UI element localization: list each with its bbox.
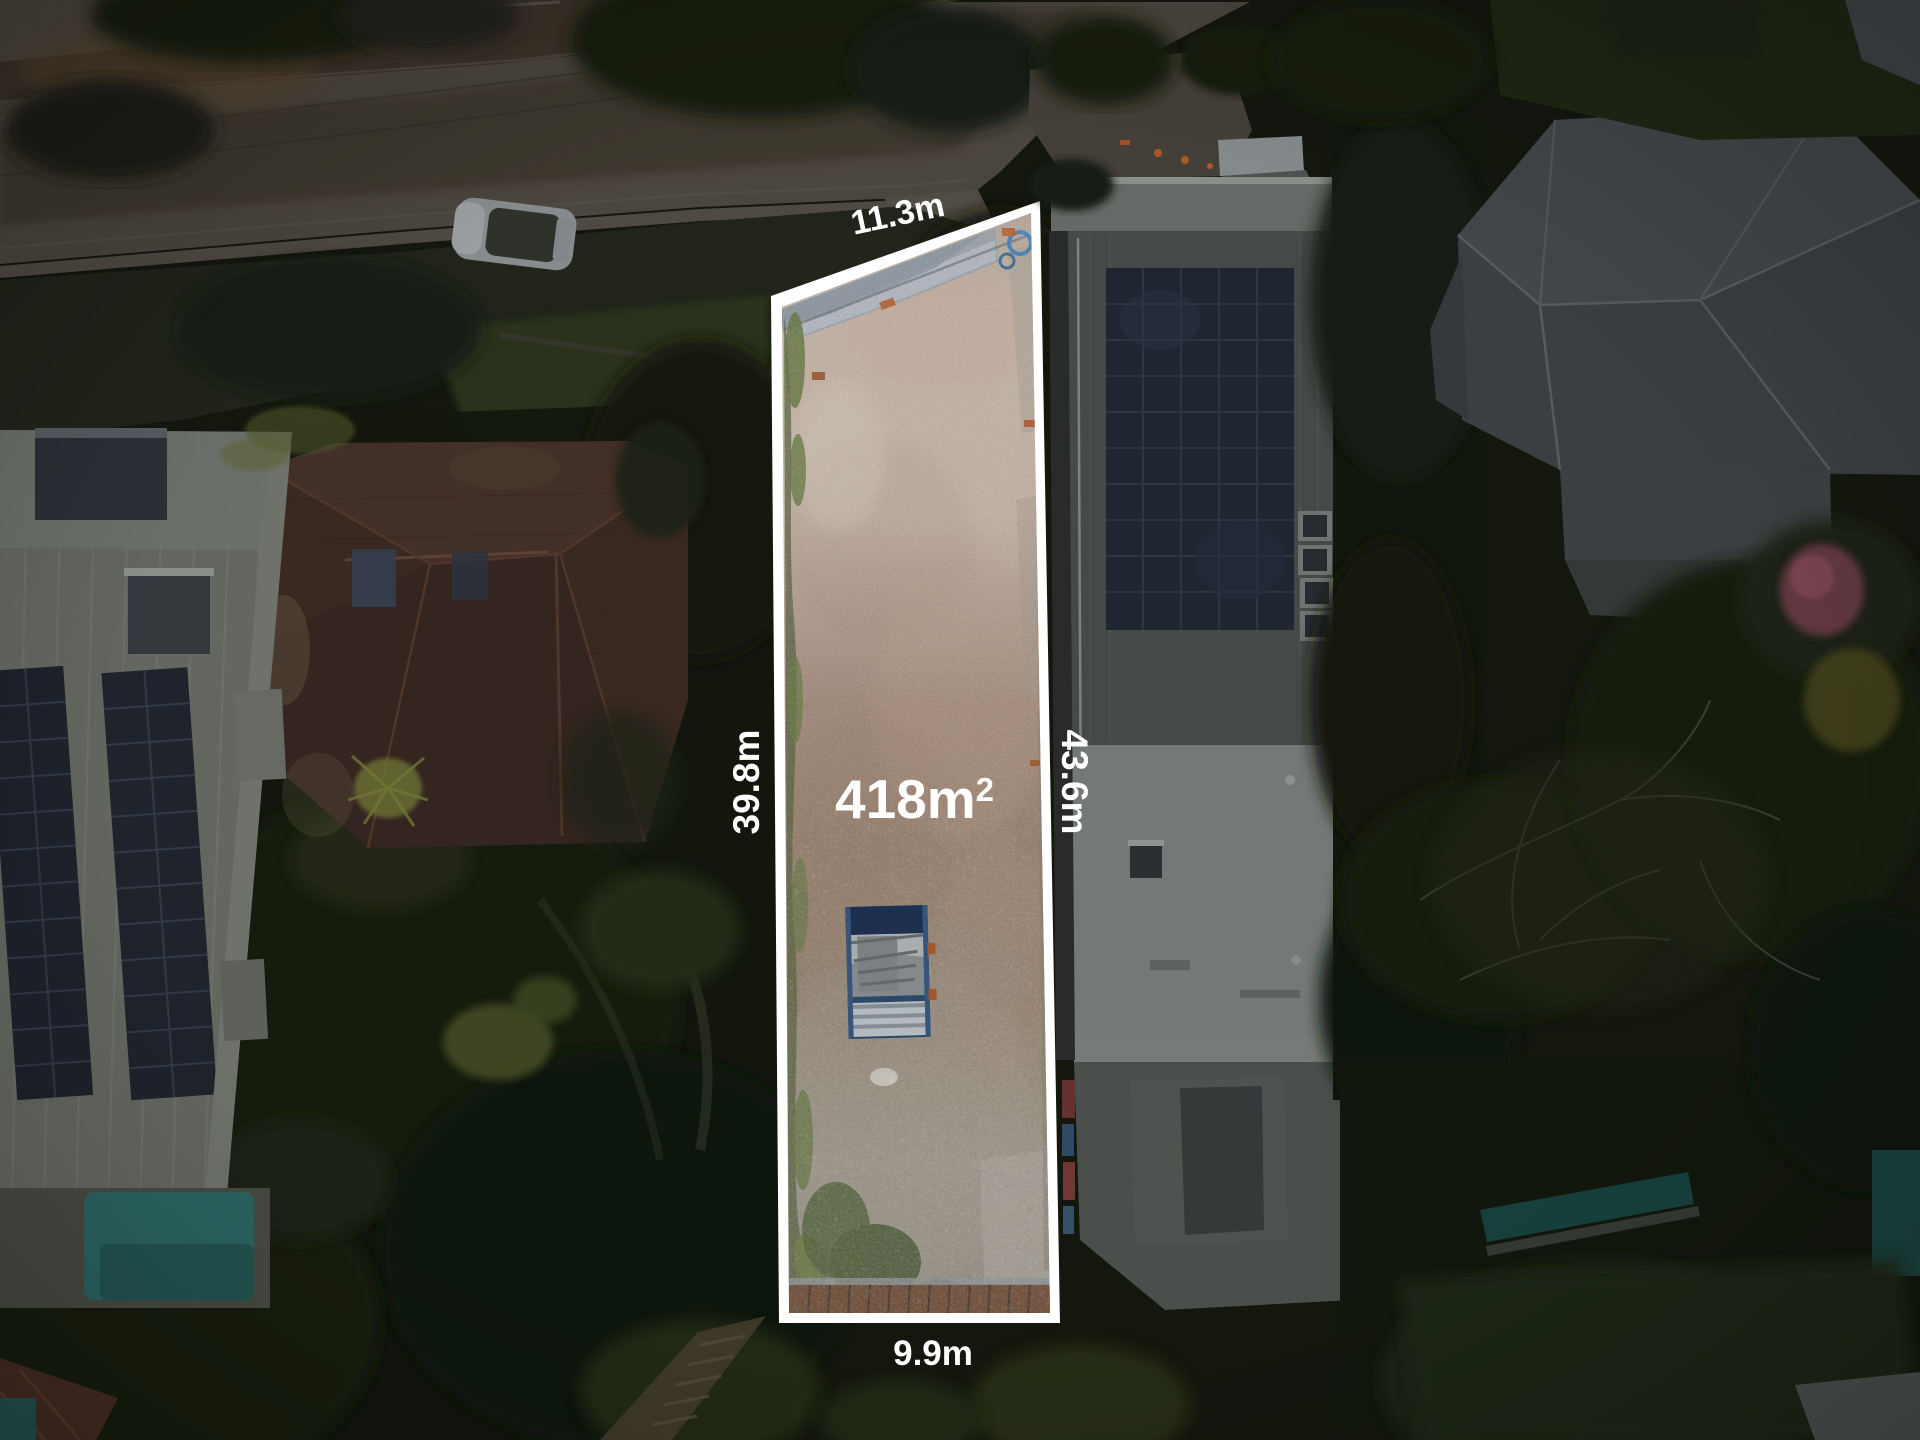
svg-text:418m2: 418m2 (835, 768, 994, 830)
svg-text:39.8m: 39.8m (726, 730, 767, 835)
svg-text:43.6m: 43.6m (1054, 730, 1095, 835)
svg-text:9.9m: 9.9m (893, 1334, 973, 1373)
